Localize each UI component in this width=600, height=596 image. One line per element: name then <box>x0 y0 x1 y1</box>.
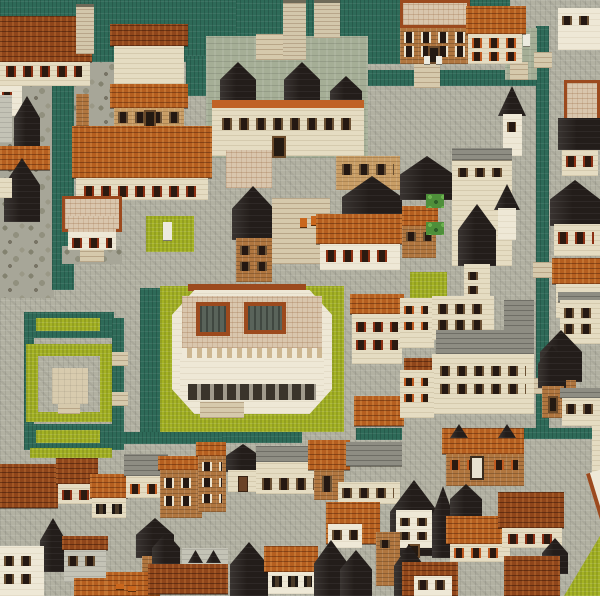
lt-a-win-2 <box>4 574 38 584</box>
barracks-north-win2 <box>438 320 488 330</box>
ct-bighouse-win-1 <box>400 518 428 526</box>
ct-brick-roof <box>196 442 226 456</box>
manor-s-wall <box>446 454 524 486</box>
chimney-3 <box>314 0 340 38</box>
canal-park-east <box>140 288 162 434</box>
shrine-windows <box>72 238 112 248</box>
manor-s-door <box>470 456 484 480</box>
barracks-win-2 <box>440 384 526 394</box>
house-nw-windows <box>6 66 82 77</box>
park-bridge-1 <box>112 352 128 366</box>
opera-skylight-2 <box>248 306 282 330</box>
tower-c-win-2 <box>468 286 484 294</box>
canal-south-3 <box>356 428 402 440</box>
manor-ne-figure-1 <box>424 56 430 64</box>
house-e7-win <box>566 404 594 414</box>
barracks-annex-n-win1 <box>404 306 428 314</box>
lt-e-win-1 <box>164 478 198 488</box>
se-h3-win <box>508 534 556 544</box>
turret-body <box>498 208 516 240</box>
annex-ne-win-2 <box>472 52 518 61</box>
house-e4-win-2 <box>564 324 594 334</box>
house-e6-door <box>548 396 558 413</box>
inn-upper-wall <box>114 46 184 84</box>
ct-h4-roof <box>346 442 402 466</box>
mansion-wall <box>212 108 364 156</box>
house-ne-corner-win <box>562 16 592 25</box>
ct-h3-win <box>322 476 334 492</box>
barracks-roof <box>436 330 534 354</box>
manor-ne-figure-2 <box>436 56 442 64</box>
ct-bighouse-win-2 <box>400 532 428 540</box>
park-plaza <box>52 368 88 404</box>
bridge-east-1 <box>533 262 553 278</box>
manor-ne-roof <box>400 0 470 28</box>
opera-skylight-1 <box>200 306 226 332</box>
town-wall-edge <box>592 414 600 476</box>
barracks-win-1 <box>440 366 526 376</box>
bridge-ne-2 <box>534 52 552 68</box>
ct-h4-win <box>342 488 394 498</box>
lt-a-roof <box>0 464 58 508</box>
house-c1-win-2 <box>240 262 268 271</box>
mb-tower-win <box>380 540 396 548</box>
annex-ne-roof <box>466 6 526 34</box>
house-e1-windows <box>566 156 594 167</box>
park-lawn-south <box>36 430 100 443</box>
lt-c-win <box>96 504 122 514</box>
dog-1 <box>116 584 124 589</box>
annex-ne-win-1 <box>472 38 518 48</box>
manor-ne-win-1 <box>404 32 466 43</box>
mb-win-2 <box>418 580 448 590</box>
mb-house-roof <box>264 546 318 572</box>
mansion-wing-roof <box>226 150 272 188</box>
house-c6-roof <box>354 396 404 426</box>
mb-roof <box>148 564 228 594</box>
barracks-annex-n-win2 <box>404 322 428 330</box>
se-h4-roof <box>504 556 560 596</box>
bush-1 <box>426 194 444 208</box>
house-c1-wall <box>236 238 272 282</box>
park-bridge-2 <box>112 392 128 406</box>
se-h2-win <box>454 548 502 558</box>
dog-2 <box>128 586 136 591</box>
ct-bighouse-wall <box>396 510 432 548</box>
lt-a-win-1 <box>4 556 38 566</box>
tower-w-wall <box>0 95 12 143</box>
ct-brick-win-3 <box>202 494 222 503</box>
mansion-windows <box>222 118 354 130</box>
canal-south-2 <box>222 431 302 443</box>
shrine-steps <box>80 250 104 262</box>
grass-strip-sw <box>30 448 112 458</box>
house-e3-roof <box>552 258 600 284</box>
mansion-east-windows <box>342 164 394 175</box>
house-c5-win-2 <box>356 340 398 350</box>
opera-porch <box>200 402 244 418</box>
park-lawn-north <box>36 318 100 331</box>
ct-h5-win <box>332 530 358 540</box>
lt-b-win <box>62 490 92 500</box>
npc-1 <box>300 218 307 227</box>
manor-s-win-1 <box>450 460 470 470</box>
mansion-trim <box>212 100 364 108</box>
lt-d-win <box>130 484 162 494</box>
house-c5-roof <box>350 294 404 314</box>
longhouse-roof <box>72 126 212 178</box>
house-e1-roofslope <box>558 118 600 150</box>
house-ne-corner-wall <box>558 8 600 50</box>
garden-statue <box>163 222 172 240</box>
bridge-ne-1 <box>414 62 440 88</box>
hall-east-windows <box>458 168 502 177</box>
game-map-viewport[interactable] <box>0 0 600 596</box>
church-window <box>507 122 516 132</box>
lt-g-win <box>68 556 100 566</box>
bush-2 <box>426 222 444 235</box>
ct-brick-win-2 <box>202 478 222 487</box>
lt-e-win-2 <box>164 496 198 506</box>
park-plaza-steps <box>58 404 80 414</box>
ct-h2-win <box>262 478 316 490</box>
opera-arcade <box>188 384 316 400</box>
tower-c-win-1 <box>468 272 484 280</box>
inn-roof-upper <box>110 24 188 46</box>
house-c1-win-1 <box>240 246 268 255</box>
mb-house-win <box>272 576 312 587</box>
house-c5-win-1 <box>356 322 398 332</box>
chimney-1 <box>76 4 94 54</box>
lt-c-roof <box>90 474 128 498</box>
barracks-annex-w-win1 <box>404 378 428 386</box>
barracks-annex-w-win2 <box>404 394 428 402</box>
ct-brick-win-1 <box>202 462 222 471</box>
mansion-door <box>272 136 286 158</box>
house-e7-roofband <box>560 388 600 398</box>
house-c3-roof <box>316 214 402 244</box>
house-w-wall <box>0 178 12 198</box>
house-c3-windows <box>326 250 392 262</box>
se-h3-roof <box>498 492 564 528</box>
chimney-2 <box>283 0 306 60</box>
park-canal-east <box>112 318 124 450</box>
barracks-north-win1 <box>438 304 488 314</box>
opera-fence <box>188 284 306 291</box>
opera-cornice <box>182 348 322 358</box>
lt-e-roof <box>158 456 202 470</box>
ct-h3-roof <box>308 440 350 470</box>
inn-roof-lower <box>110 84 188 108</box>
terrace-ne-statue-2 <box>523 34 530 46</box>
house-e4-win-1 <box>564 308 594 318</box>
hall-east-roofband <box>452 148 512 160</box>
ct-h1-door <box>238 476 248 492</box>
house-e1-roofslab <box>564 80 600 122</box>
terrace-ne-steps <box>510 62 528 80</box>
house-e2-windows <box>558 232 594 244</box>
lt-g-roof <box>62 536 108 550</box>
lt-a-wall <box>0 546 44 596</box>
manor-s-win-2 <box>494 460 518 470</box>
lawn-center <box>410 272 447 298</box>
